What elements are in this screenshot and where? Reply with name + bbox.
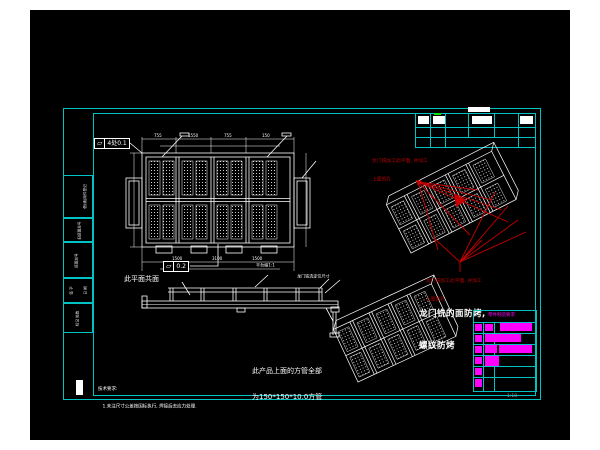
highlight-bar — [485, 334, 521, 342]
side-view — [142, 275, 340, 337]
flatness-callout-b: ▱ 0.2 — [163, 261, 189, 272]
dim-text: 755 — [224, 133, 232, 138]
flatness-callout-a: ▱ 4处0.1 — [94, 138, 130, 149]
plan-view — [126, 133, 316, 295]
tech-requirements: 技术要求: 1.未注尺寸公差按国标执行, 焊接后去应力处理. — [98, 375, 197, 420]
highlight-bar — [475, 357, 482, 364]
note-square-tube: 此产品上面的方管全部 为150*150*10.0方管 — [252, 349, 322, 419]
highlight-bar — [485, 356, 499, 366]
label-longmen: 龙门铣选定位尺寸 — [297, 274, 330, 279]
red-note-line: 龙门铣加工此平面, 并加工 — [426, 278, 482, 284]
label-platform: 平台缩1:1 — [256, 263, 275, 268]
highlight-bar — [499, 345, 532, 353]
highlight-bar — [475, 324, 482, 331]
title-block-vline — [483, 322, 484, 392]
red-note-line: 上面的孔 — [372, 176, 428, 182]
note-line: 为150*150*10.0方管 — [252, 393, 322, 402]
dim-text: 3100 — [212, 256, 223, 261]
highlight-bar — [475, 368, 482, 375]
highlight-bar — [475, 346, 482, 353]
dim-text: 150 — [262, 133, 270, 138]
note-line: 此产品上面的方管全部 — [252, 367, 322, 376]
flatness-value: 4处0.1 — [104, 139, 128, 148]
highlight-bar — [500, 323, 532, 331]
red-note-line: 龙门铣加工此平面, 并加工 — [372, 158, 428, 164]
hatched-panels — [149, 161, 277, 239]
label-coplanar: 此平面共面 — [124, 275, 159, 284]
red-note-top: 龙门铣加工此平面, 并加工 上面的孔 — [372, 146, 428, 194]
dim-text: 755 — [154, 133, 162, 138]
cad-drawing-canvas[interactable]: 借(通)用件登记 签字 日期 旧底图总号 签字 底图总号 日期 签 字 日 期 … — [30, 10, 570, 440]
dim-text: 1500 — [252, 256, 263, 261]
highlight-bar — [475, 335, 482, 342]
dim-text: 1550 — [188, 133, 199, 138]
scale-label: 1:10 — [507, 393, 517, 399]
tech-line: 1.未注尺寸公差按国标执行, 焊接后去应力处理. — [98, 403, 197, 409]
flatness-symbol: ▱ — [164, 262, 173, 271]
dimension-texts: 755 1550 755 150 1500 3100 1500 — [154, 133, 270, 261]
tech-title: 技术要求: — [98, 386, 197, 392]
highlight-bar — [475, 379, 482, 387]
flatness-value: 0.2 — [173, 262, 188, 271]
highlight-bar — [485, 345, 497, 353]
flatness-symbol: ▱ — [95, 139, 104, 148]
highlight-bar — [485, 324, 493, 331]
title-block-header: 零件制造要求 — [488, 312, 515, 318]
